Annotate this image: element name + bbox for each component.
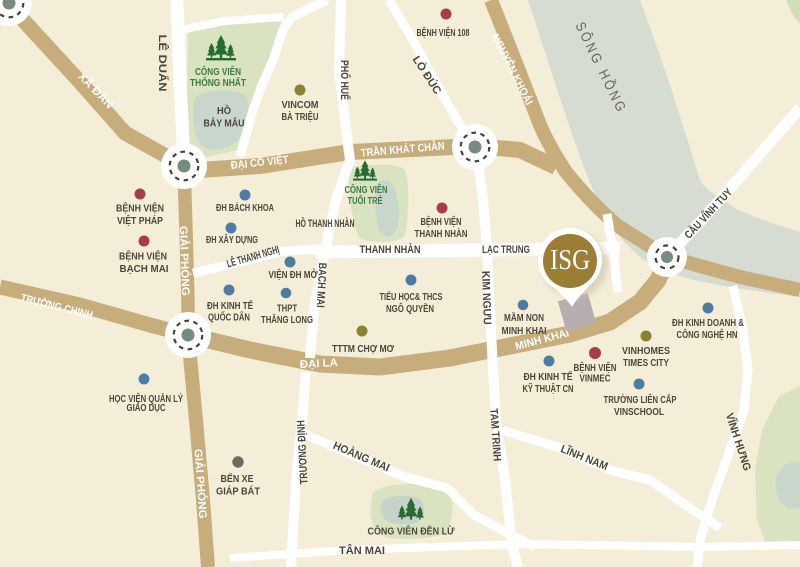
svg-text:MẦM NON: MẦM NON — [504, 311, 544, 324]
svg-text:LÊ DUẨN: LÊ DUẨN — [156, 35, 169, 92]
svg-text:ĐH KINH DOANH &: ĐH KINH DOANH & — [672, 317, 744, 329]
svg-text:LẠC TRUNG: LẠC TRUNG — [482, 244, 530, 256]
svg-text:CÔNG NGHỆ HN: CÔNG NGHỆ HN — [677, 328, 738, 341]
svg-text:VINCOM: VINCOM — [282, 99, 319, 111]
svg-text:BÀ TRIỆU: BÀ TRIỆU — [282, 110, 319, 123]
svg-text:GIẢI PHÓNG: GIẢI PHÓNG — [177, 226, 192, 296]
svg-text:THPT: THPT — [277, 303, 297, 315]
svg-text:BẾN XE: BẾN XE — [221, 472, 254, 485]
svg-text:MINH KHAI: MINH KHAI — [502, 325, 547, 337]
svg-text:KIM NGƯU: KIM NGƯU — [479, 271, 493, 325]
svg-text:GIÁP BÁT: GIÁP BÁT — [216, 485, 261, 498]
svg-text:THỐNG NHẤT: THỐNG NHẤT — [190, 75, 246, 89]
svg-text:KỸ THUẬT CN: KỸ THUẬT CN — [523, 382, 574, 395]
svg-text:TUỔI TRẺ: TUỔI TRẺ — [348, 194, 383, 207]
svg-text:NGÔ QUYỀN: NGÔ QUYỀN — [386, 302, 434, 315]
svg-text:THĂNG LONG: THĂNG LONG — [261, 313, 313, 326]
svg-text:BỆNH VIỆN 108: BỆNH VIỆN 108 — [417, 26, 470, 39]
svg-text:THANH NHÀN: THANH NHÀN — [360, 243, 421, 256]
svg-text:VINSCHOOL: VINSCHOOL — [614, 406, 664, 418]
svg-text:TTTM CHỢ MƠ: TTTM CHỢ MƠ — [332, 343, 394, 355]
svg-text:BẢY MẪU: BẢY MẪU — [204, 117, 245, 130]
svg-text:ĐH XÂY DỰNG: ĐH XÂY DỰNG — [206, 233, 258, 246]
svg-text:VIỆN ĐH MỞ: VIỆN ĐH MỞ — [269, 268, 318, 281]
svg-text:ĐH KINH TẾ: ĐH KINH TẾ — [207, 299, 253, 312]
svg-text:VIỆT PHÁP: VIỆT PHÁP — [117, 214, 163, 227]
svg-text:HỒ THANH NHÀN: HỒ THANH NHÀN — [296, 217, 355, 230]
svg-text:QUỐC DÂN: QUỐC DÂN — [208, 310, 250, 324]
svg-text:PHỐ HUẾ: PHỐ HUẾ — [338, 60, 352, 100]
svg-text:HỒ: HỒ — [217, 104, 231, 117]
svg-text:TÂN MAI: TÂN MAI — [339, 544, 385, 557]
svg-text:ĐẠI LA: ĐẠI LA — [300, 357, 339, 371]
svg-text:THANH NHÀN: THANH NHÀN — [415, 227, 468, 240]
svg-text:ISG: ISG — [550, 245, 590, 276]
svg-text:VINMEC: VINMEC — [580, 373, 611, 385]
svg-text:BẠCH MAI: BẠCH MAI — [120, 263, 169, 275]
svg-text:GIÁO DỤC: GIÁO DỤC — [127, 401, 166, 414]
svg-text:VINHOMES: VINHOMES — [622, 345, 670, 357]
svg-text:ĐH BÁCH KHOA: ĐH BÁCH KHOA — [216, 201, 274, 214]
svg-text:TIỂU HỌC& THCS: TIỂU HỌC& THCS — [380, 290, 443, 303]
svg-text:BỆNH VIỆN: BỆNH VIỆN — [119, 250, 167, 263]
svg-text:TRƯỜNG LIÊN CẤP: TRƯỜNG LIÊN CẤP — [604, 393, 677, 406]
svg-text:BỆNH VIỆN: BỆNH VIỆN — [116, 202, 164, 215]
svg-text:ĐH KINH TẾ: ĐH KINH TẾ — [524, 370, 573, 383]
svg-text:BỆNH VIỆN: BỆNH VIỆN — [421, 215, 462, 228]
svg-text:TIMES CITY: TIMES CITY — [623, 357, 669, 369]
svg-text:CÔNG VIÊN ĐỀN LỪ: CÔNG VIÊN ĐỀN LỪ — [368, 525, 455, 538]
